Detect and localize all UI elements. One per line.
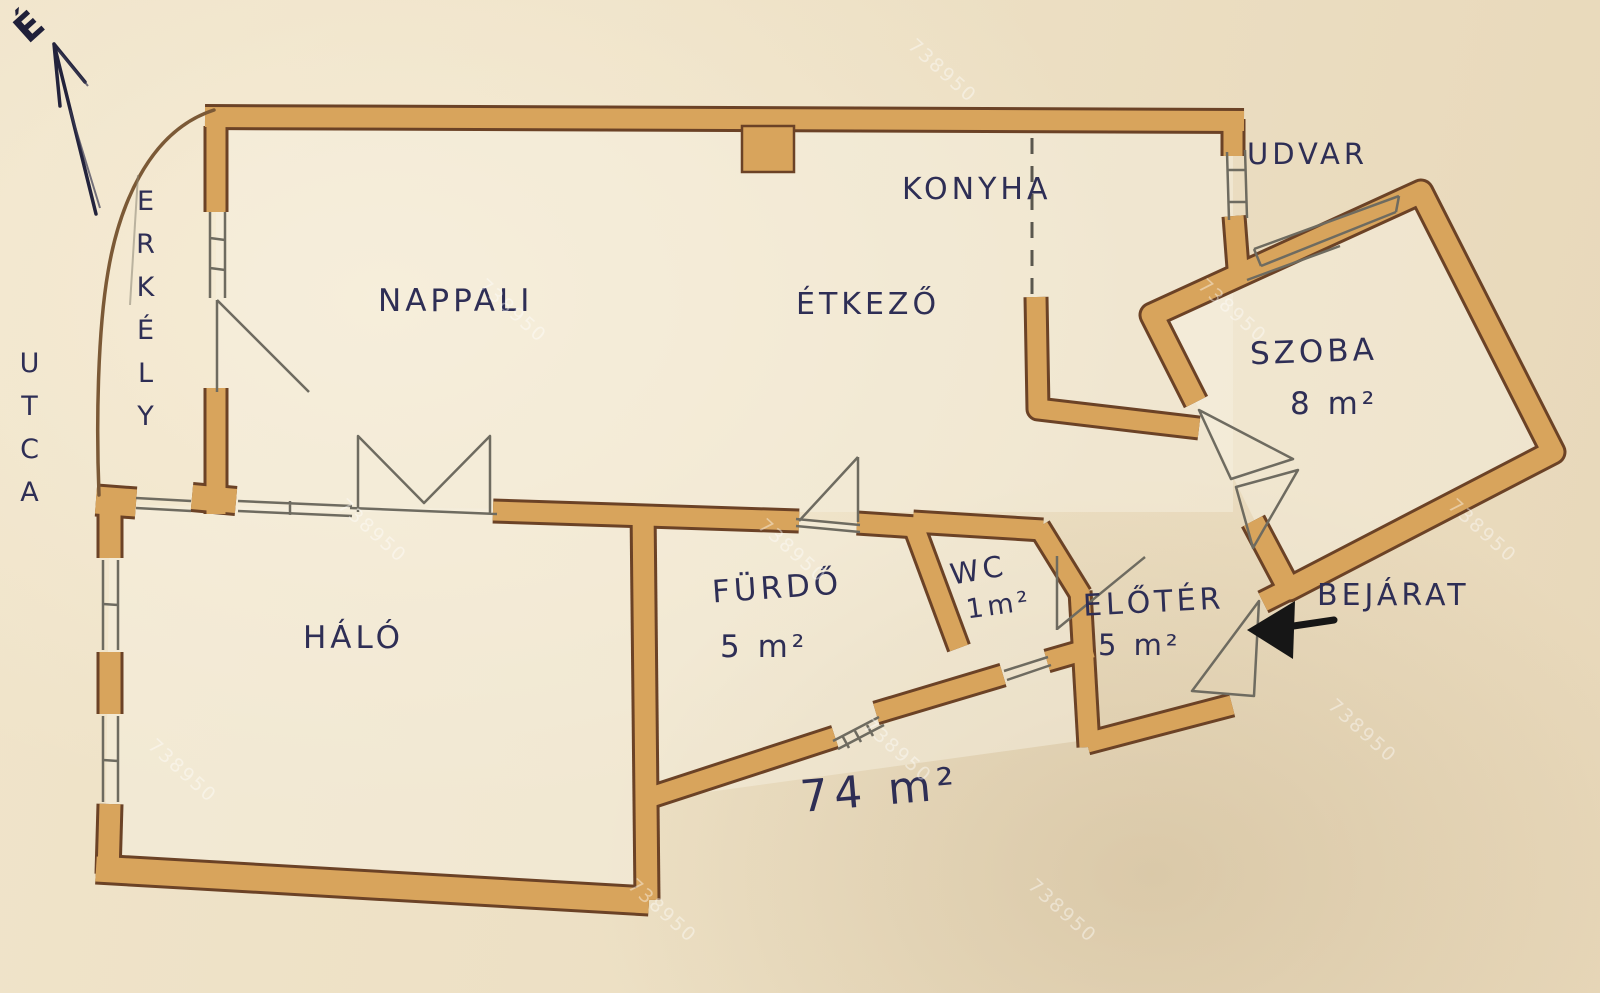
room-label-nappali: NAPPALI (378, 283, 533, 319)
room-label-eloter: ELŐTÉR (1082, 581, 1225, 623)
street-label: UTCA (14, 348, 45, 520)
balcony-label: ERKÉLY (130, 186, 161, 444)
entrance-label: BEJÁRAT (1317, 578, 1470, 613)
room-label-halo: HÁLÓ (303, 620, 404, 656)
room-area-szoba: 8 m² (1290, 386, 1378, 422)
room-label-szoba: SZOBA (1249, 332, 1378, 372)
room-area-furdo: 5 m² (720, 629, 808, 665)
room-label-etkezo: ÉTKEZŐ (796, 287, 940, 322)
room-label-konyha: KONYHA (902, 172, 1052, 207)
courtyard-label: UDVAR (1247, 137, 1368, 171)
chimney-pillar (742, 126, 794, 172)
floor-plan-photo: É UTCA ERKÉLY NAPPALI KONYHA ÉTKEZŐ UDVA… (0, 0, 1600, 993)
north-arrow (54, 44, 100, 214)
room-area-eloter: 5 m² (1098, 628, 1182, 662)
